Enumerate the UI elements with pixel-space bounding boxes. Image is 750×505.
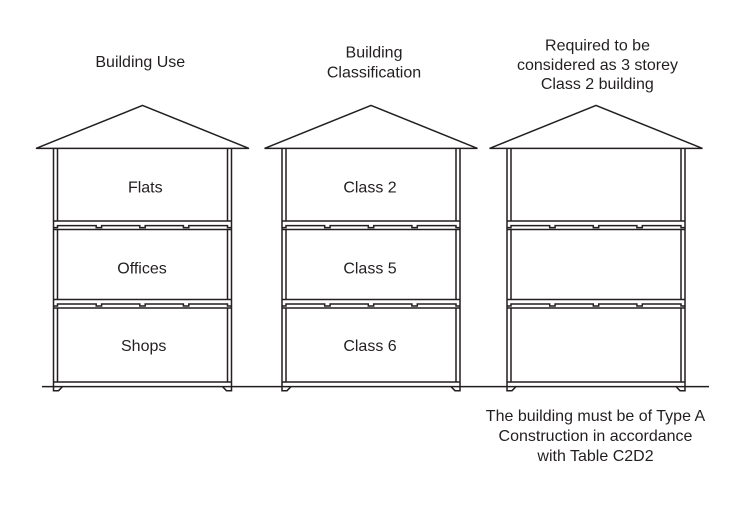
svg-text:Flats: Flats	[128, 179, 163, 196]
svg-text:with Table C2D2: with Table C2D2	[536, 448, 653, 465]
svg-text:Class 6: Class 6	[343, 338, 396, 355]
svg-text:Building: Building	[346, 44, 403, 61]
svg-text:Building Use: Building Use	[95, 54, 185, 71]
svg-text:Class 2 building: Class 2 building	[541, 76, 654, 93]
svg-text:The building must be of Type A: The building must be of Type A	[486, 408, 706, 425]
svg-text:considered as 3 storey: considered as 3 storey	[517, 57, 678, 74]
svg-text:Offices: Offices	[117, 260, 167, 277]
svg-text:Class 5: Class 5	[343, 260, 396, 277]
svg-text:Required to be: Required to be	[545, 37, 650, 54]
svg-text:Shops: Shops	[121, 338, 166, 355]
svg-text:Classification: Classification	[327, 64, 421, 81]
svg-text:Construction in accordance: Construction in accordance	[499, 428, 693, 445]
svg-text:Class 2: Class 2	[343, 179, 396, 196]
